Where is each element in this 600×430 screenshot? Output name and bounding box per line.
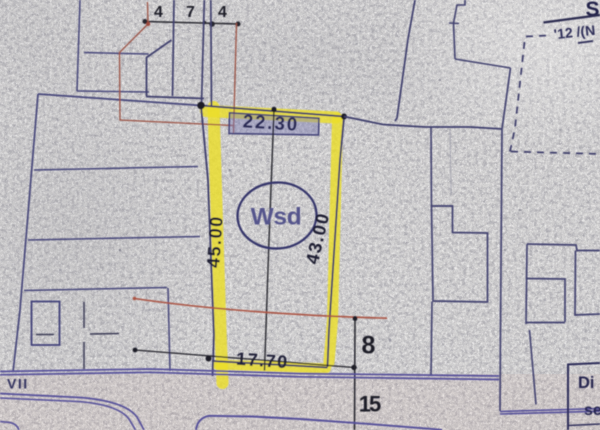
svg-text:22.30: 22.30 (242, 110, 299, 134)
svg-text:se: se (584, 402, 600, 419)
svg-text:15: 15 (359, 392, 381, 417)
svg-text:7: 7 (186, 4, 195, 21)
svg-text:S: S (585, 0, 599, 21)
svg-text:45.00: 45.00 (203, 215, 227, 269)
svg-text:VII: VII (7, 376, 29, 392)
svg-text:Wsd: Wsd (251, 204, 302, 231)
svg-text:8: 8 (362, 332, 376, 360)
svg-text:4: 4 (154, 4, 163, 21)
svg-text:4: 4 (218, 4, 227, 21)
svg-text:Di: Di (578, 374, 595, 392)
